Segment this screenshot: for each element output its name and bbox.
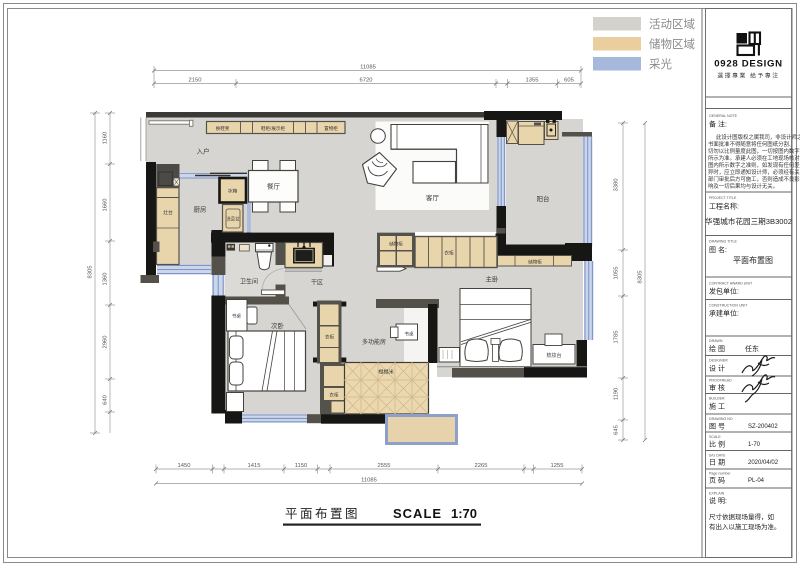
svg-text:11085: 11085 xyxy=(361,478,377,484)
svg-text:换鞋凳: 换鞋凳 xyxy=(216,125,230,132)
svg-text:梳妆台: 梳妆台 xyxy=(546,352,561,359)
svg-text:设 计: 设 计 xyxy=(709,364,725,373)
svg-text:1-70: 1-70 xyxy=(748,442,761,448)
svg-text:卫生间: 卫生间 xyxy=(240,278,258,286)
svg-text:采光: 采光 xyxy=(649,57,672,71)
svg-text:EXPLAIN: EXPLAIN xyxy=(709,492,725,496)
svg-text:页 码: 页 码 xyxy=(709,477,725,485)
svg-text:605: 605 xyxy=(564,78,574,84)
svg-text:8305: 8305 xyxy=(88,266,94,279)
svg-text:比 例: 比 例 xyxy=(709,440,725,449)
svg-text:CONSTRUCTION UNIT: CONSTRUCTION UNIT xyxy=(709,304,748,308)
svg-text:阳台: 阳台 xyxy=(537,194,550,203)
svg-text:衣柜: 衣柜 xyxy=(329,392,339,399)
svg-text:PL-04: PL-04 xyxy=(748,478,765,484)
svg-text:11085: 11085 xyxy=(360,65,376,71)
svg-text:S/G DATE: S/G DATE xyxy=(709,454,726,458)
svg-text:备 注:: 备 注: xyxy=(709,120,727,129)
svg-text:選擇專業 給予專注: 選擇專業 給予專注 xyxy=(717,72,779,80)
svg-text:书桌: 书桌 xyxy=(232,313,242,320)
svg-text:任东: 任东 xyxy=(745,344,759,353)
svg-text:1160: 1160 xyxy=(103,132,109,144)
svg-text:1355: 1355 xyxy=(526,78,539,84)
svg-text:鞋柜/展示柜: 鞋柜/展示柜 xyxy=(261,125,286,132)
svg-text:所示为准。承建人必须在工地现场核对: 所示为准。承建人必须在工地现场核对 xyxy=(708,154,800,162)
svg-text:多功能房: 多功能房 xyxy=(362,338,386,346)
svg-text:6720: 6720 xyxy=(360,78,373,84)
svg-text:图 名:: 图 名: xyxy=(709,245,727,254)
svg-text:尺寸依据现场量得，如: 尺寸依据现场量得，如 xyxy=(709,512,774,521)
svg-text:干区: 干区 xyxy=(311,280,323,287)
svg-text:1055: 1055 xyxy=(614,267,620,280)
svg-text:PROJECT TITLE: PROJECT TITLE xyxy=(709,196,737,200)
svg-text:1360: 1360 xyxy=(103,273,109,286)
svg-text:置物柜: 置物柜 xyxy=(324,125,338,132)
svg-text:衣柜: 衣柜 xyxy=(325,334,335,341)
svg-text:平面布置图: 平面布置图 xyxy=(285,507,360,521)
svg-text:1:70: 1:70 xyxy=(451,506,477,521)
svg-text:榻榻米: 榻榻米 xyxy=(378,368,394,376)
svg-text:审 核: 审 核 xyxy=(709,383,725,392)
svg-text:工程名称:: 工程名称: xyxy=(709,202,739,211)
svg-text:1415: 1415 xyxy=(248,463,261,469)
svg-text:图 号: 图 号 xyxy=(709,423,725,431)
svg-text:入户: 入户 xyxy=(197,147,210,156)
svg-text:平面布置图: 平面布置图 xyxy=(733,255,773,265)
svg-text:灶台: 灶台 xyxy=(163,209,173,216)
svg-text:施 工: 施 工 xyxy=(709,402,725,411)
svg-text:Page number: Page number xyxy=(709,472,731,476)
svg-text:说 明:: 说 明: xyxy=(709,496,727,505)
svg-text:2555: 2555 xyxy=(378,463,391,469)
svg-text:DRAWN: DRAWN xyxy=(709,339,723,343)
svg-text:GENERAL NOTE: GENERAL NOTE xyxy=(709,114,738,118)
svg-text:承建单位:: 承建单位: xyxy=(709,309,739,318)
svg-text:储物区域: 储物区域 xyxy=(649,37,695,51)
svg-text:645: 645 xyxy=(614,425,620,435)
svg-text:有出入以施工现场为准。: 有出入以施工现场为准。 xyxy=(709,522,781,531)
svg-text:DESIGNER: DESIGNER xyxy=(709,359,728,363)
svg-text:异时，应立即通知设计师，必须经有关: 异时，应立即通知设计师，必须经有关 xyxy=(708,168,800,176)
svg-text:DRAWING TITLE: DRAWING TITLE xyxy=(709,240,738,244)
svg-text:BUILDER: BUILDER xyxy=(709,397,725,401)
svg-text:次卧: 次卧 xyxy=(271,321,285,330)
svg-text:此设计图版权之属我司，非设计师之: 此设计图版权之属我司，非设计师之 xyxy=(716,133,800,141)
svg-text:绘 图: 绘 图 xyxy=(709,344,725,353)
svg-text:图内所示数字之准则，如发现有任何差: 图内所示数字之准则，如发现有任何差 xyxy=(708,161,800,169)
svg-text:冰箱: 冰箱 xyxy=(228,188,238,195)
svg-text:8305: 8305 xyxy=(638,271,644,284)
svg-text:书面批准不得随意将任何图纸分割、: 书面批准不得随意将任何图纸分割、 xyxy=(708,140,794,148)
svg-text:2150: 2150 xyxy=(189,78,202,84)
svg-text:2960: 2960 xyxy=(103,336,109,349)
svg-text:活动区域: 活动区域 xyxy=(649,17,695,31)
svg-text:餐厅: 餐厅 xyxy=(267,182,281,191)
svg-text:2020/04/02: 2020/04/02 xyxy=(748,460,779,466)
svg-text:发包单位:: 发包单位: xyxy=(709,287,739,296)
svg-text:1190: 1190 xyxy=(614,388,620,400)
svg-text:SZ-200402: SZ-200402 xyxy=(748,424,778,430)
svg-text:1255: 1255 xyxy=(551,463,564,469)
svg-text:DRAWING NO: DRAWING NO xyxy=(709,417,733,421)
svg-text:部门审批后方可施工，否则造成不良影: 部门审批后方可施工，否则造成不良影 xyxy=(708,175,800,183)
svg-text:日 期: 日 期 xyxy=(709,459,725,467)
svg-text:华强城市花园三期3B3002: 华强城市花园三期3B3002 xyxy=(705,216,792,226)
svg-text:CONTRACT AWARD UNIT: CONTRACT AWARD UNIT xyxy=(709,282,753,286)
svg-text:2265: 2265 xyxy=(475,463,488,469)
svg-text:1660: 1660 xyxy=(103,199,109,212)
svg-text:衣柜: 衣柜 xyxy=(444,250,454,257)
svg-text:厨房: 厨房 xyxy=(194,205,207,214)
svg-text:客厅: 客厅 xyxy=(426,193,440,202)
svg-text:切勿以比例量度此图，一切按图内数字: 切勿以比例量度此图，一切按图内数字 xyxy=(708,147,800,155)
svg-text:PROOFREAD: PROOFREAD xyxy=(709,379,732,383)
svg-text:1150: 1150 xyxy=(295,463,307,469)
svg-text:1785: 1785 xyxy=(614,331,620,344)
svg-text:储物柜: 储物柜 xyxy=(389,241,403,248)
svg-text:主卧: 主卧 xyxy=(486,275,500,284)
svg-text:1450: 1450 xyxy=(178,463,191,469)
svg-text:SCALE: SCALE xyxy=(393,506,442,521)
svg-text:储物柜: 储物柜 xyxy=(528,259,542,266)
svg-text:SCALE: SCALE xyxy=(709,435,721,439)
svg-text:640: 640 xyxy=(103,395,109,405)
svg-text:洗菜盆: 洗菜盆 xyxy=(226,216,240,223)
svg-text:响及一切后果均与设计无关。: 响及一切后果均与设计无关。 xyxy=(708,182,778,190)
svg-text:3380: 3380 xyxy=(614,179,620,192)
svg-text:书桌: 书桌 xyxy=(404,331,414,338)
svg-text:0928 DESIGN: 0928 DESIGN xyxy=(714,59,783,70)
